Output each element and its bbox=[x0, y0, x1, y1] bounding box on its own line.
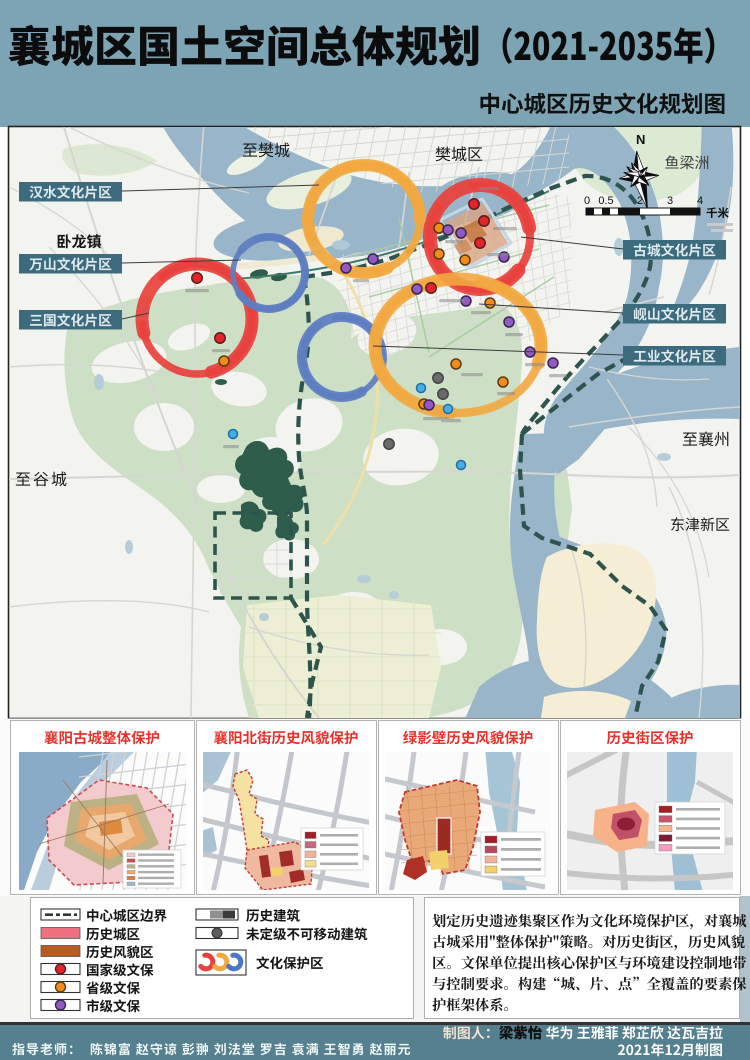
svg-text:0: 0 bbox=[584, 195, 590, 207]
svg-text:3: 3 bbox=[667, 195, 673, 207]
svg-text:N: N bbox=[636, 132, 645, 147]
svg-text:2: 2 bbox=[637, 195, 643, 207]
svg-text:4: 4 bbox=[697, 195, 703, 207]
svg-text:0.5: 0.5 bbox=[598, 195, 613, 207]
